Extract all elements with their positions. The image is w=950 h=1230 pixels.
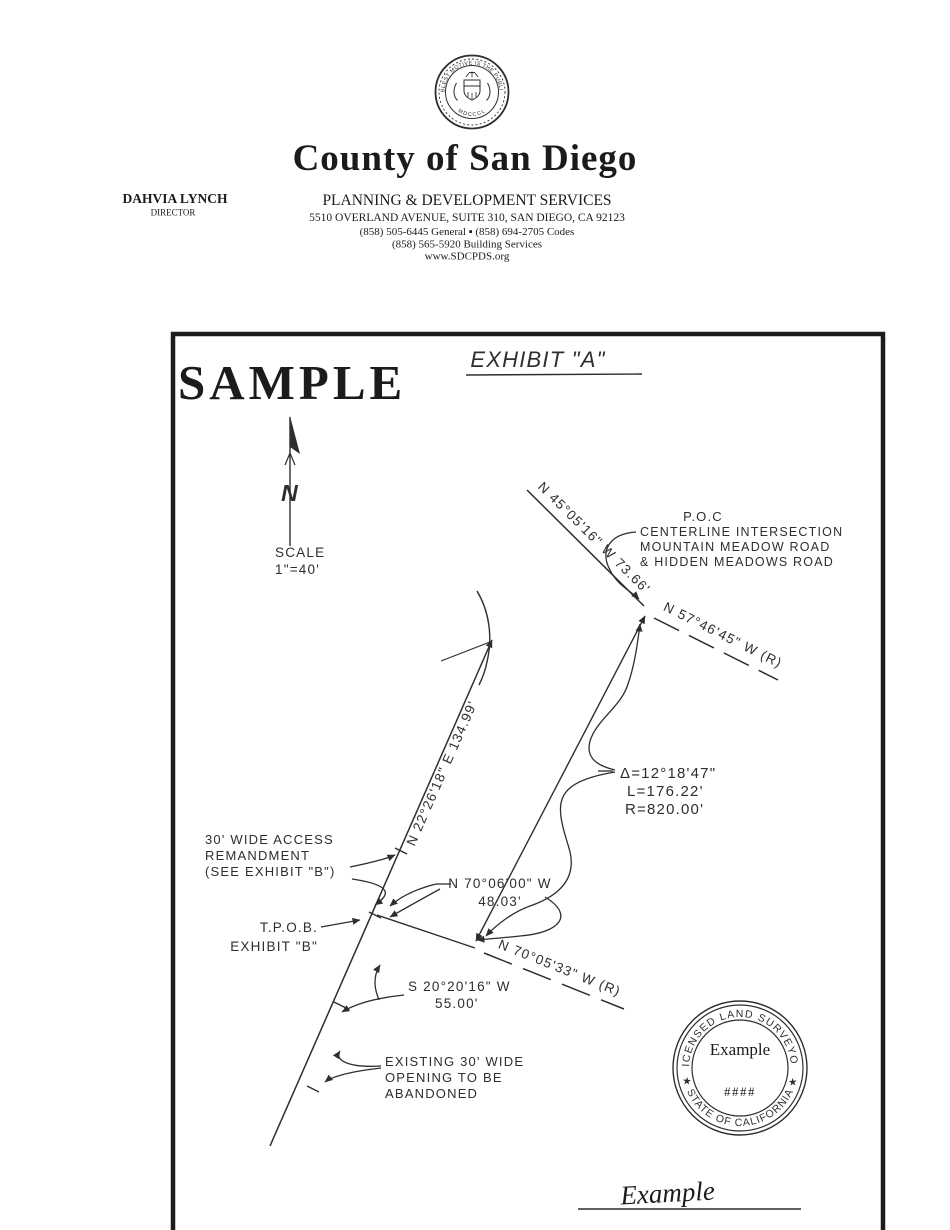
county-seal: THE NOBLEST MOTIVE IS THE PUBLIC GOOD MD… (0, 0, 509, 129)
leader-7006-b (390, 889, 440, 917)
bearing-south-text: S 20°20'16" W (408, 979, 511, 994)
department-website: www.SDCPDS.org (425, 251, 510, 263)
north-arrow-flag (290, 416, 300, 454)
surveyor-seal-license: #### (724, 1084, 756, 1099)
signature-text: Example (619, 1176, 716, 1211)
south-leader (342, 995, 404, 1012)
county-seal-motto-text: THE NOBLEST MOTIVE IS THE PUBLIC GOOD (0, 0, 503, 92)
county-seal-motto: THE NOBLEST MOTIVE IS THE PUBLIC GOOD (0, 0, 503, 92)
poc-line-3: & HIDDEN MEADOWS ROAD (640, 555, 834, 569)
department-name: PLANNING & DEVELOPMENT SERVICES (322, 192, 611, 209)
access-line-2: REMANDMENT (205, 848, 310, 863)
poc-title: P.O.C (683, 509, 723, 524)
curve-radius: R=820.00' (625, 801, 704, 818)
scale-value: 1"=40' (275, 562, 320, 577)
director-title: DIRECTOR (151, 208, 196, 218)
bearing-label-45: N 45°05'16" W 73.66' (535, 479, 653, 597)
tpob-line-1: T.P.O.B. (260, 920, 318, 935)
access-line-3: (SEE EXHIBIT "B") (205, 864, 336, 879)
tpob-leader (321, 920, 360, 927)
bearing-main-text: N 22°26'18" E 134.99' (403, 698, 480, 848)
curve-delta: Δ=12°18'47" (620, 765, 716, 782)
bearing-7005-text: N 70°05'33" W (R) (496, 937, 623, 999)
poc-line-2: MOUNTAIN MEADOW ROAD (640, 540, 830, 554)
boundary-tick (307, 1086, 319, 1092)
bearing-45-text: N 45°05'16" W 73.66' (535, 479, 653, 597)
director-name: DAHVIA LYNCH (123, 191, 228, 206)
county-seal-emblem (454, 72, 490, 101)
curve-leader-upper (589, 624, 640, 770)
department-building-services: (858) 565-5920 Building Services (392, 239, 542, 251)
abandon-line-2: OPENING TO BE (385, 1070, 503, 1085)
surveyor-seal-outer-ring (673, 1001, 807, 1135)
tangent-spur (441, 642, 490, 661)
short-course-line (377, 915, 475, 948)
bearing-label-7005: N 70°05'33" W (R) (496, 937, 623, 999)
abandon-leader-up (339, 1051, 381, 1066)
abandon-line-3: ABANDONED (385, 1086, 478, 1101)
exhibit-title-underline (466, 374, 642, 375)
poc-bearing-line (527, 490, 644, 606)
bearing-short-dist: 48.03' (478, 894, 522, 909)
bearing-label-main: N 22°26'18" E 134.99' (403, 698, 480, 848)
surveyor-seal-mid-ring (677, 1005, 803, 1131)
county-wordmark: County of San Diego (293, 138, 638, 179)
department-address: 5510 OVERLAND AVENUE, SUITE 310, SAN DIE… (309, 212, 625, 224)
tpob-line-2: EXHIBIT "B" (230, 939, 318, 954)
exhibit-title: EXHIBIT "A" (470, 347, 605, 372)
north-symbol: N (281, 480, 299, 506)
seal-shield-hatch (468, 92, 476, 99)
scanned-document-page: THE NOBLEST MOTIVE IS THE PUBLIC GOOD MD… (0, 0, 950, 1230)
document-canvas: THE NOBLEST MOTIVE IS THE PUBLIC GOOD MD… (0, 0, 950, 1230)
exhibit-border (173, 334, 883, 1230)
boundary-tick (334, 1002, 346, 1008)
seal-crown (466, 72, 478, 78)
surveyor-seal-inner-ring (692, 1020, 788, 1116)
access-leader-b (352, 879, 385, 905)
surveyor-seal-name: Example (710, 1040, 770, 1059)
south-leader-up (375, 965, 380, 1000)
bearing-57-text: N 57°46'45" W (R) (661, 599, 785, 671)
access-leader-a (350, 855, 395, 867)
bearing-short-text: N 70°06'00" W (448, 876, 551, 891)
access-line-1: 30' WIDE ACCESS (205, 832, 334, 847)
bearing-south-dist: 55.00' (435, 996, 479, 1011)
north-arrow: N (281, 416, 300, 546)
abandon-line-1: EXISTING 30' WIDE (385, 1054, 524, 1069)
poc-line-1: CENTERLINE INTERSECTION (640, 525, 843, 539)
sample-watermark: SAMPLE (178, 355, 406, 410)
scale-label: SCALE (275, 545, 325, 560)
abandon-leader-down (325, 1068, 381, 1082)
department-phones: (858) 505-6445 General ▪ (858) 694-2705 … (360, 226, 575, 238)
bearing-label-57: N 57°46'45" W (R) (661, 599, 785, 671)
curve-length: L=176.22' (627, 783, 704, 800)
